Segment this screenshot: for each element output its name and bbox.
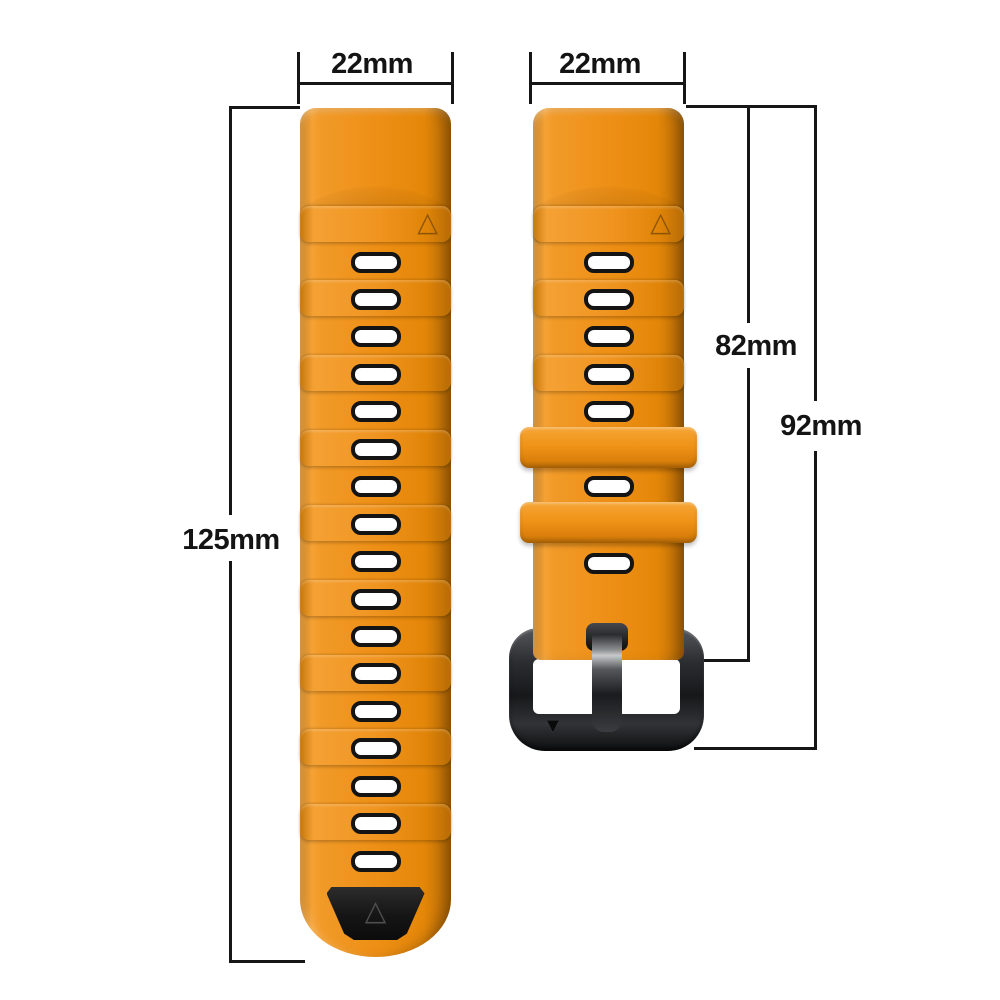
strap-hole [351, 514, 401, 535]
dimension-line [529, 82, 686, 85]
strap-hole [351, 663, 401, 684]
triangle-marker-icon: △ [417, 209, 438, 236]
strap-hole [584, 289, 634, 310]
dimension-line [814, 451, 817, 750]
strap-hole [351, 626, 401, 647]
dimension-line [229, 106, 232, 515]
strap-hole [351, 701, 401, 722]
strap-hole [351, 252, 401, 273]
strap-hole [584, 326, 634, 347]
dimension-label-to-buckle: 82mm [715, 332, 797, 361]
tip-triangle-icon: △ [365, 897, 387, 925]
strap-hole [351, 476, 401, 497]
strap-hole [351, 289, 401, 310]
dimension-label-left-length: 125mm [182, 526, 279, 555]
strap-hole [351, 551, 401, 572]
strap-hole [584, 476, 634, 497]
triangle-marker-icon: △ [650, 209, 671, 236]
strap-hole [351, 589, 401, 610]
dimension-line [229, 960, 305, 963]
dimension-line [451, 52, 454, 104]
strap-hole [351, 364, 401, 385]
dimension-line [694, 747, 817, 750]
dimension-line [747, 105, 750, 323]
strap-hole [351, 813, 401, 834]
triangle-band: △ [300, 206, 451, 242]
product-dimension-diagram: 22mm 22mm 125mm 82mm 92mm △ △ △ [0, 0, 1000, 1000]
dimension-line [747, 368, 750, 662]
strap-hole [584, 401, 634, 422]
strap-hole [351, 776, 401, 797]
keeper-loop [520, 427, 697, 468]
dimension-line [703, 659, 750, 662]
strap-hole [584, 252, 634, 273]
dimension-line [297, 52, 300, 104]
dimension-line [229, 561, 232, 962]
triangle-band: △ [533, 206, 684, 242]
dimension-line [297, 82, 454, 85]
buckle-triangle-icon: ▼ [543, 716, 563, 736]
dimension-line [529, 52, 532, 104]
dimension-label-left-width: 22mm [331, 50, 413, 79]
dimension-label-right-width: 22mm [559, 50, 641, 79]
dimension-line [814, 105, 817, 401]
strap-hole [351, 738, 401, 759]
buckle-prong [592, 634, 622, 732]
left-strap: △ △ [300, 108, 451, 957]
strap-hole [584, 553, 634, 574]
right-strap: △ [533, 108, 684, 660]
dimension-line [686, 105, 817, 108]
strap-hole [351, 401, 401, 422]
strap-hole [351, 851, 401, 872]
keeper-loop [520, 502, 697, 543]
strap-hole [351, 326, 401, 347]
dimension-line [683, 52, 686, 104]
dimension-label-total-length: 92mm [780, 412, 862, 441]
strap-hole [351, 439, 401, 460]
strap-hole [584, 364, 634, 385]
strap-tip-marker: △ [327, 887, 425, 940]
dimension-line [229, 106, 300, 109]
